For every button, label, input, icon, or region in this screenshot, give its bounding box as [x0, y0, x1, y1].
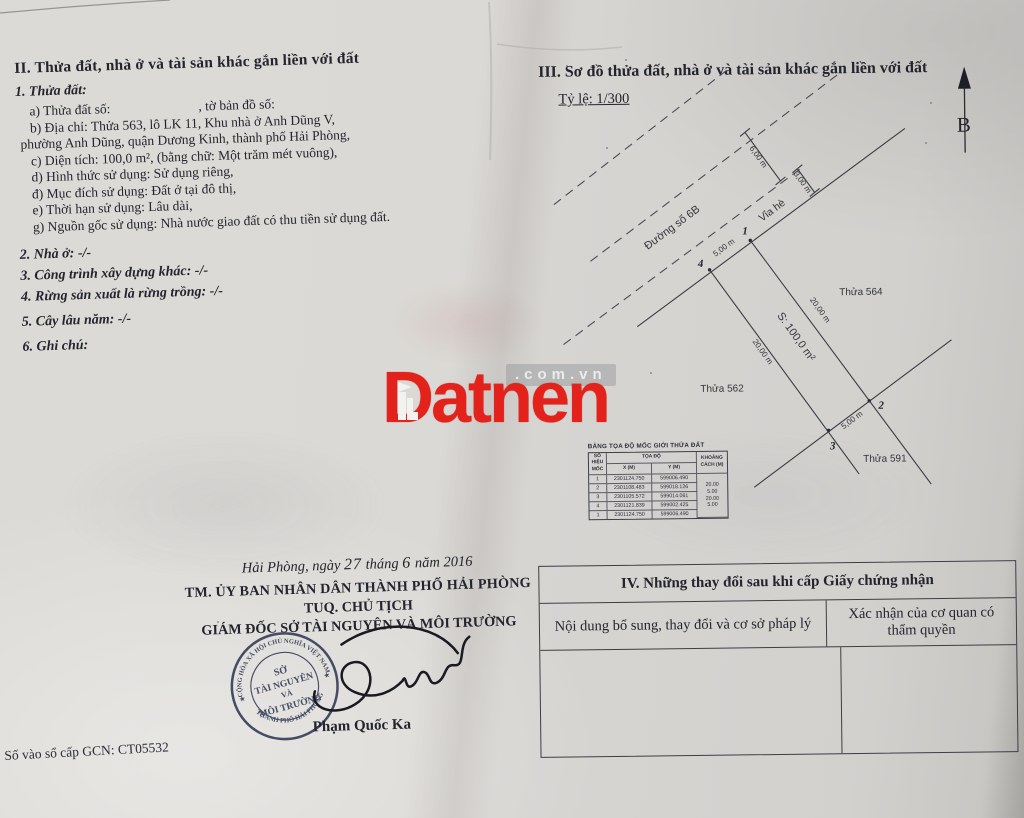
- map-sheet-label: , tờ bản đồ số:: [198, 96, 275, 113]
- col-header-x: X (M): [607, 464, 652, 476]
- right-edge-dimension: 20,00 m: [808, 296, 832, 325]
- date-month-label: tháng: [365, 556, 398, 573]
- item5-perennial: 5. Cây lâu năm: -/-: [22, 301, 500, 331]
- corner-id-cell: 3: [589, 493, 607, 502]
- corner-label-1: 1: [742, 225, 748, 237]
- neighbor-parcel-564: Thửa 564: [839, 286, 883, 299]
- item6-notes: 6. Ghi chú:: [22, 326, 500, 356]
- north-arrow: B: [956, 67, 972, 153]
- neighbor-parcel-591: Thửa 591: [863, 452, 907, 465]
- date-month-handwritten: 6: [402, 554, 412, 571]
- road-edge-dashed-line: [552, 64, 740, 205]
- coordinate-table: SỐ HIỆU MỐC TỌA ĐỘ KHOẢNG CÁCH (M) X (M)…: [588, 451, 729, 521]
- seal-center-line1: SỞ: [272, 664, 288, 679]
- parcel-number-label: a) Thửa đất số:: [29, 101, 110, 118]
- section4-col1-header: Nội dung bổ sung, thay đổi và cơ sở pháp…: [540, 600, 828, 650]
- sidewalk-width-dimension: 3,00 m: [792, 170, 814, 195]
- corner-id-cell: 1: [590, 511, 608, 519]
- left-page: II. Thửa đất, nhà ở và tài sản khác gắn …: [14, 46, 513, 760]
- sidewalk-edge-dashed-line: [561, 167, 805, 345]
- date-day-handwritten: 27: [344, 556, 362, 574]
- parcel-area-label: S: 100,0 m²: [774, 310, 817, 363]
- corner-id-cell: 1: [589, 475, 607, 484]
- col-header-distance: KHOẢNG CÁCH (M): [697, 452, 727, 474]
- date-prefix: Hải Phòng, ngày: [242, 558, 341, 577]
- section4-col2-header: Xác nhận của cơ quan có thẩm quyền: [827, 598, 1017, 646]
- seal-star-left-icon: ★: [238, 694, 247, 704]
- corner-label-3: 3: [829, 440, 836, 452]
- neighbor-parcel-562: Thửa 562: [700, 382, 744, 395]
- tick-cap: [740, 128, 750, 136]
- section4-header-row: Nội dung bổ sung, thay đổi và cơ sở pháp…: [540, 598, 1017, 651]
- corner-id-cell: 2: [589, 484, 607, 493]
- distance-cells: 20.00 5.00 20.00 5.00: [697, 474, 728, 518]
- distance-value: 5.00: [707, 502, 717, 509]
- coordinate-table-title: BẢNG TỌA ĐỘ MỐC GIỚI THỬA ĐẤT: [588, 441, 768, 450]
- back-edge-dimension: 5,00 m: [839, 409, 864, 431]
- x-cell: 2301124.750: [608, 511, 653, 520]
- north-label: B: [957, 113, 971, 137]
- road-name-label: Đường số 6B: [642, 203, 702, 252]
- col-header-y: Y (M): [652, 463, 697, 475]
- section4-table: IV. Những thay đổi sau khi cấp Giấy chứn…: [538, 560, 1018, 758]
- section4-title: IV. Những thay đổi sau khi cấp Giấy chứn…: [539, 561, 1015, 604]
- road-width-dimension: 6,00 m: [747, 144, 769, 169]
- coordinate-table-block: BẢNG TỌA ĐỘ MỐC GIỚI THỬA ĐẤT SỐ HIỆU MỐ…: [588, 441, 769, 520]
- sidewalk-label: Vỉa hè: [757, 197, 788, 225]
- certificate-book-number: Số vào sổ cấp GCN: CT05532: [4, 739, 169, 764]
- corner-label-4: 4: [697, 258, 704, 270]
- date-year: năm 2016: [415, 554, 473, 572]
- blank-fill: [111, 111, 199, 114]
- north-arrow-head-icon: [958, 67, 971, 89]
- horizontal-crease: [497, 44, 622, 50]
- section4-empty-cell: [540, 647, 842, 757]
- page-curl-line: [0, 0, 170, 13]
- y-cell: 599006.490: [653, 510, 698, 519]
- corner-label-2: 2: [877, 400, 884, 412]
- section4-empty-body: [540, 645, 1017, 757]
- corner-id-cell: 4: [589, 502, 607, 511]
- right-page: III. Sơ đồ thửa đất, nhà ở và tài sản kh…: [528, 52, 1024, 778]
- col-header-corner-id: SỐ HIỆU MỐC: [589, 453, 607, 475]
